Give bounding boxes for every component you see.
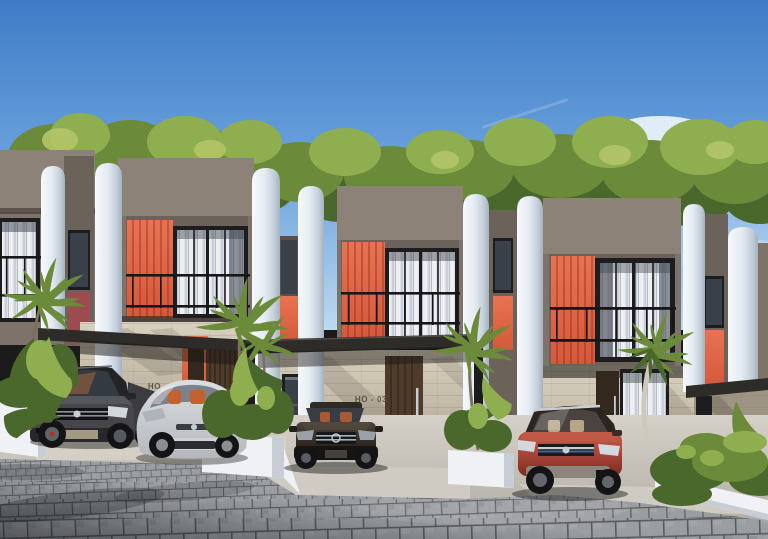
accent-panel-ho02 [127, 220, 173, 318]
brand-emblem [191, 424, 197, 430]
headlight [518, 440, 536, 452]
license-plate [325, 450, 347, 458]
side-mirror [612, 430, 622, 436]
pillar [683, 204, 705, 392]
pillar [298, 186, 324, 436]
pillar [728, 227, 758, 386]
side-column-left [64, 156, 94, 346]
accent-sliver-2 [493, 296, 513, 350]
unit-ho02-upper [118, 158, 254, 323]
facade-end-sliver [757, 243, 768, 385]
accent-sliver-3 [704, 330, 724, 386]
side-mirror [375, 426, 383, 432]
side-mirror [126, 393, 136, 399]
headlight [108, 406, 128, 418]
side-mirror [289, 426, 297, 432]
unit-ho03-upper [337, 186, 463, 342]
townhouse-exterior-render: HO - 02 HO - 03 [0, 0, 768, 539]
scene: HO - 02 HO - 03 [0, 0, 768, 539]
pillar [95, 163, 122, 400]
brand-emblem [74, 411, 81, 418]
car-seat [190, 390, 205, 404]
planter-right [448, 450, 514, 488]
brand-emblem [563, 447, 570, 454]
